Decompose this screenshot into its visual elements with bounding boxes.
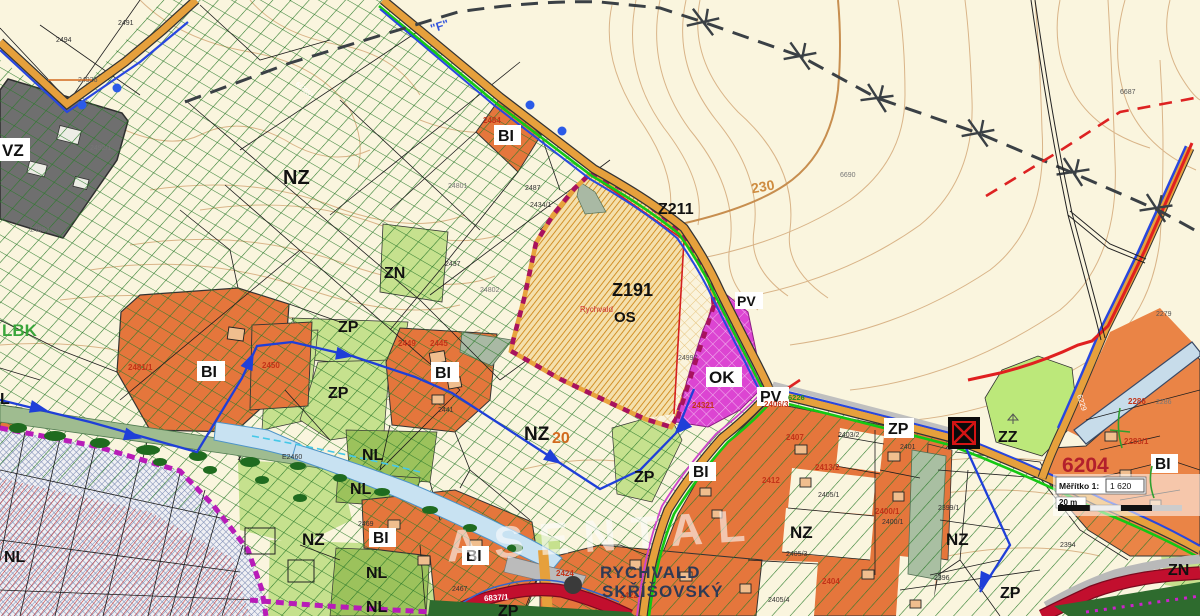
svg-text:6226: 6226 — [788, 393, 805, 402]
svg-text:ZP: ZP — [328, 385, 349, 402]
svg-text:2405/3: 2405/3 — [786, 551, 808, 558]
svg-text:2407: 2407 — [786, 433, 804, 442]
svg-text:NZ: NZ — [790, 523, 813, 542]
svg-text:2400/1: 2400/1 — [882, 519, 904, 526]
svg-text:NZ: NZ — [946, 530, 969, 549]
svg-text:2286: 2286 — [1128, 397, 1146, 406]
svg-text:2404: 2404 — [822, 577, 840, 586]
svg-text:2283/1: 2283/1 — [1124, 437, 1149, 446]
svg-text:2467: 2467 — [452, 586, 468, 593]
svg-text:NL: NL — [362, 447, 384, 464]
svg-text:24321: 24321 — [692, 401, 715, 410]
svg-text:2434/1: 2434/1 — [530, 202, 552, 209]
svg-text:ZP: ZP — [634, 469, 655, 486]
svg-text:2469: 2469 — [358, 521, 374, 528]
svg-text:BI: BI — [1155, 456, 1171, 473]
svg-text:2400/1: 2400/1 — [875, 507, 900, 516]
svg-text:20: 20 — [552, 430, 570, 447]
svg-text:NL: NL — [366, 599, 388, 616]
svg-text:BI: BI — [201, 364, 217, 381]
svg-text:ZN: ZN — [384, 265, 405, 282]
svg-text:2484: 2484 — [483, 116, 501, 125]
svg-text:2492/1: 2492/1 — [90, 145, 112, 152]
svg-text:NZ: NZ — [302, 530, 325, 549]
svg-text:2487: 2487 — [525, 185, 541, 192]
svg-text:2441: 2441 — [438, 407, 454, 414]
svg-text:2401: 2401 — [900, 444, 916, 451]
svg-text:BI: BI — [435, 365, 451, 382]
svg-text:ZZ: ZZ — [998, 429, 1018, 446]
svg-text:2403/2: 2403/2 — [838, 432, 860, 439]
svg-text:ZP: ZP — [338, 319, 359, 336]
svg-text:Rychvald: Rychvald — [580, 305, 613, 314]
svg-text:ZP: ZP — [498, 603, 519, 616]
svg-text:L: L — [0, 391, 10, 408]
svg-text:NZ: NZ — [524, 424, 550, 445]
svg-text:2449: 2449 — [398, 339, 416, 348]
svg-text:BI: BI — [498, 128, 514, 145]
svg-text:NZ: NZ — [283, 167, 310, 189]
svg-text:Z191: Z191 — [612, 280, 653, 300]
svg-text:2405/1: 2405/1 — [818, 492, 840, 499]
svg-text:24894: 24894 — [30, 227, 50, 234]
svg-text:6690: 6690 — [840, 172, 856, 179]
svg-text:2399/1: 2399/1 — [938, 505, 960, 512]
svg-text:BI: BI — [373, 530, 389, 547]
svg-text:6204: 6204 — [1062, 454, 1109, 477]
svg-text:SKŘÍŠOVSKÝ: SKŘÍŠOVSKÝ — [602, 582, 723, 601]
svg-text:Měřítko 1:: Měřítko 1: — [1059, 481, 1099, 491]
svg-text:PV: PV — [737, 293, 756, 309]
svg-text:LBK: LBK — [2, 321, 38, 340]
svg-text:ZP: ZP — [1000, 585, 1021, 602]
svg-text:VZ: VZ — [2, 141, 24, 160]
svg-text:6837/1: 6837/1 — [484, 592, 510, 603]
svg-text:OS: OS — [614, 309, 636, 326]
svg-text:2445: 2445 — [430, 339, 448, 348]
svg-text:E2460: E2460 — [282, 454, 302, 461]
svg-text:2437: 2437 — [445, 261, 461, 268]
svg-text:2396: 2396 — [934, 575, 950, 582]
svg-text:1 620: 1 620 — [1110, 481, 1132, 491]
svg-text:2406/3: 2406/3 — [764, 400, 789, 409]
svg-text:NL: NL — [350, 481, 372, 498]
svg-text:2450: 2450 — [262, 361, 280, 370]
svg-text:BI: BI — [693, 464, 709, 481]
svg-text:OK: OK — [709, 368, 735, 387]
svg-text:24997: 24997 — [678, 355, 698, 362]
svg-text:Z211: Z211 — [658, 201, 694, 218]
svg-text:ZN: ZN — [1168, 562, 1189, 579]
svg-text:2405/4: 2405/4 — [768, 597, 790, 604]
svg-text:24802: 24802 — [480, 287, 500, 294]
svg-text:2279: 2279 — [1156, 311, 1172, 318]
svg-text:ZP: ZP — [888, 421, 909, 438]
svg-text:2494: 2494 — [56, 37, 72, 44]
svg-text:NL: NL — [366, 565, 388, 582]
svg-text:2481/1: 2481/1 — [128, 363, 153, 372]
svg-text:6687: 6687 — [1120, 89, 1136, 96]
svg-text:NL: NL — [4, 549, 26, 566]
svg-text:2394: 2394 — [1060, 542, 1076, 549]
svg-text:2412: 2412 — [762, 476, 780, 485]
svg-text:RYCHVALD: RYCHVALD — [600, 563, 701, 582]
svg-text:2491: 2491 — [118, 20, 134, 27]
svg-text:2413/2: 2413/2 — [815, 463, 840, 472]
svg-text:2286: 2286 — [1156, 399, 1172, 406]
svg-text:24801: 24801 — [448, 183, 468, 190]
